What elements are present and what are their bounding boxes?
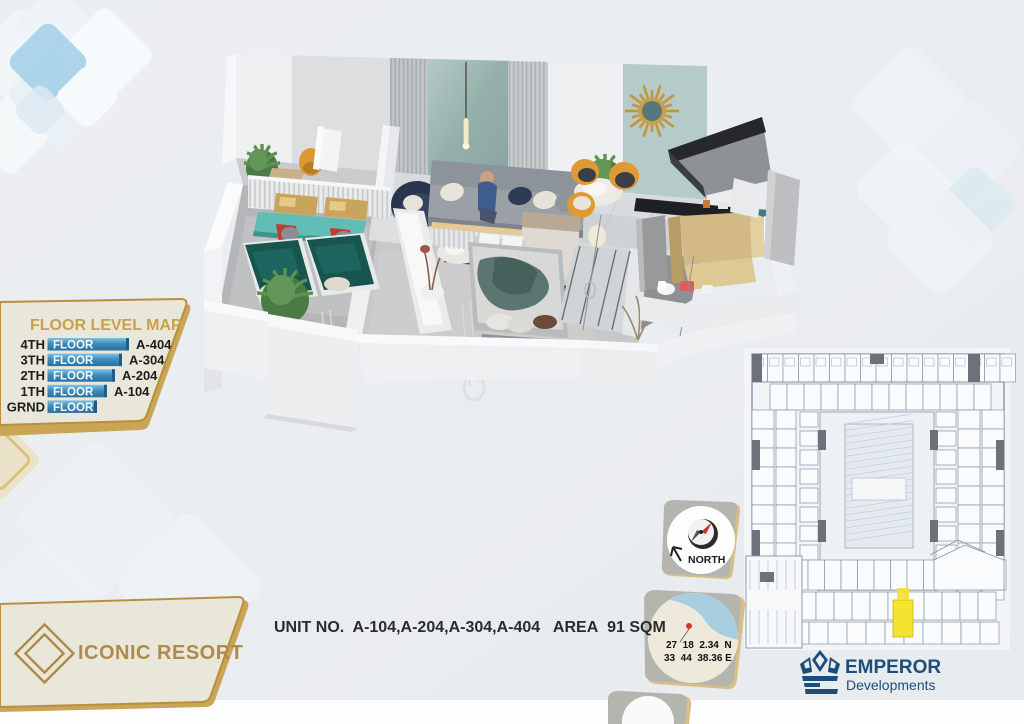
svg-text:FLOOR: FLOOR [53,340,94,352]
svg-text:4TH: 4TH [20,337,45,352]
svg-text:FLOOR: FLOOR [53,355,94,367]
svg-text:EMPEROR: EMPEROR [845,657,941,678]
svg-text:ICONIC RESORT: ICONIC RESORT [78,642,243,664]
svg-text:A-404: A-404 [136,337,172,352]
svg-text:FLOOR: FLOOR [53,402,94,414]
svg-text:FLOOR LEVEL MAP: FLOOR LEVEL MAP [30,317,182,334]
svg-text:FLOOR: FLOOR [53,371,94,383]
svg-text:3TH: 3TH [20,353,45,368]
svg-text:2TH: 2TH [20,368,45,383]
svg-text:A-304: A-304 [129,353,165,368]
svg-text:1TH: 1TH [20,384,45,399]
svg-text:UNIT NO. A-104,A-204,A-304,A-: UNIT NO. A-104,A-204,A-304,A-404 AREA 91… [274,619,666,636]
svg-text:27 18 2.34 N: 27 18 2.34 N [666,640,732,651]
svg-text:GRND: GRND [7,399,45,414]
svg-text:NORTH: NORTH [688,554,725,566]
svg-text:33 44 38.36 E: 33 44 38.36 E [664,653,732,664]
svg-text:A-204: A-204 [122,368,158,383]
svg-text:Developments: Developments [846,677,936,693]
svg-text:A-104: A-104 [114,384,150,399]
svg-text:FLOOR: FLOOR [53,386,94,398]
